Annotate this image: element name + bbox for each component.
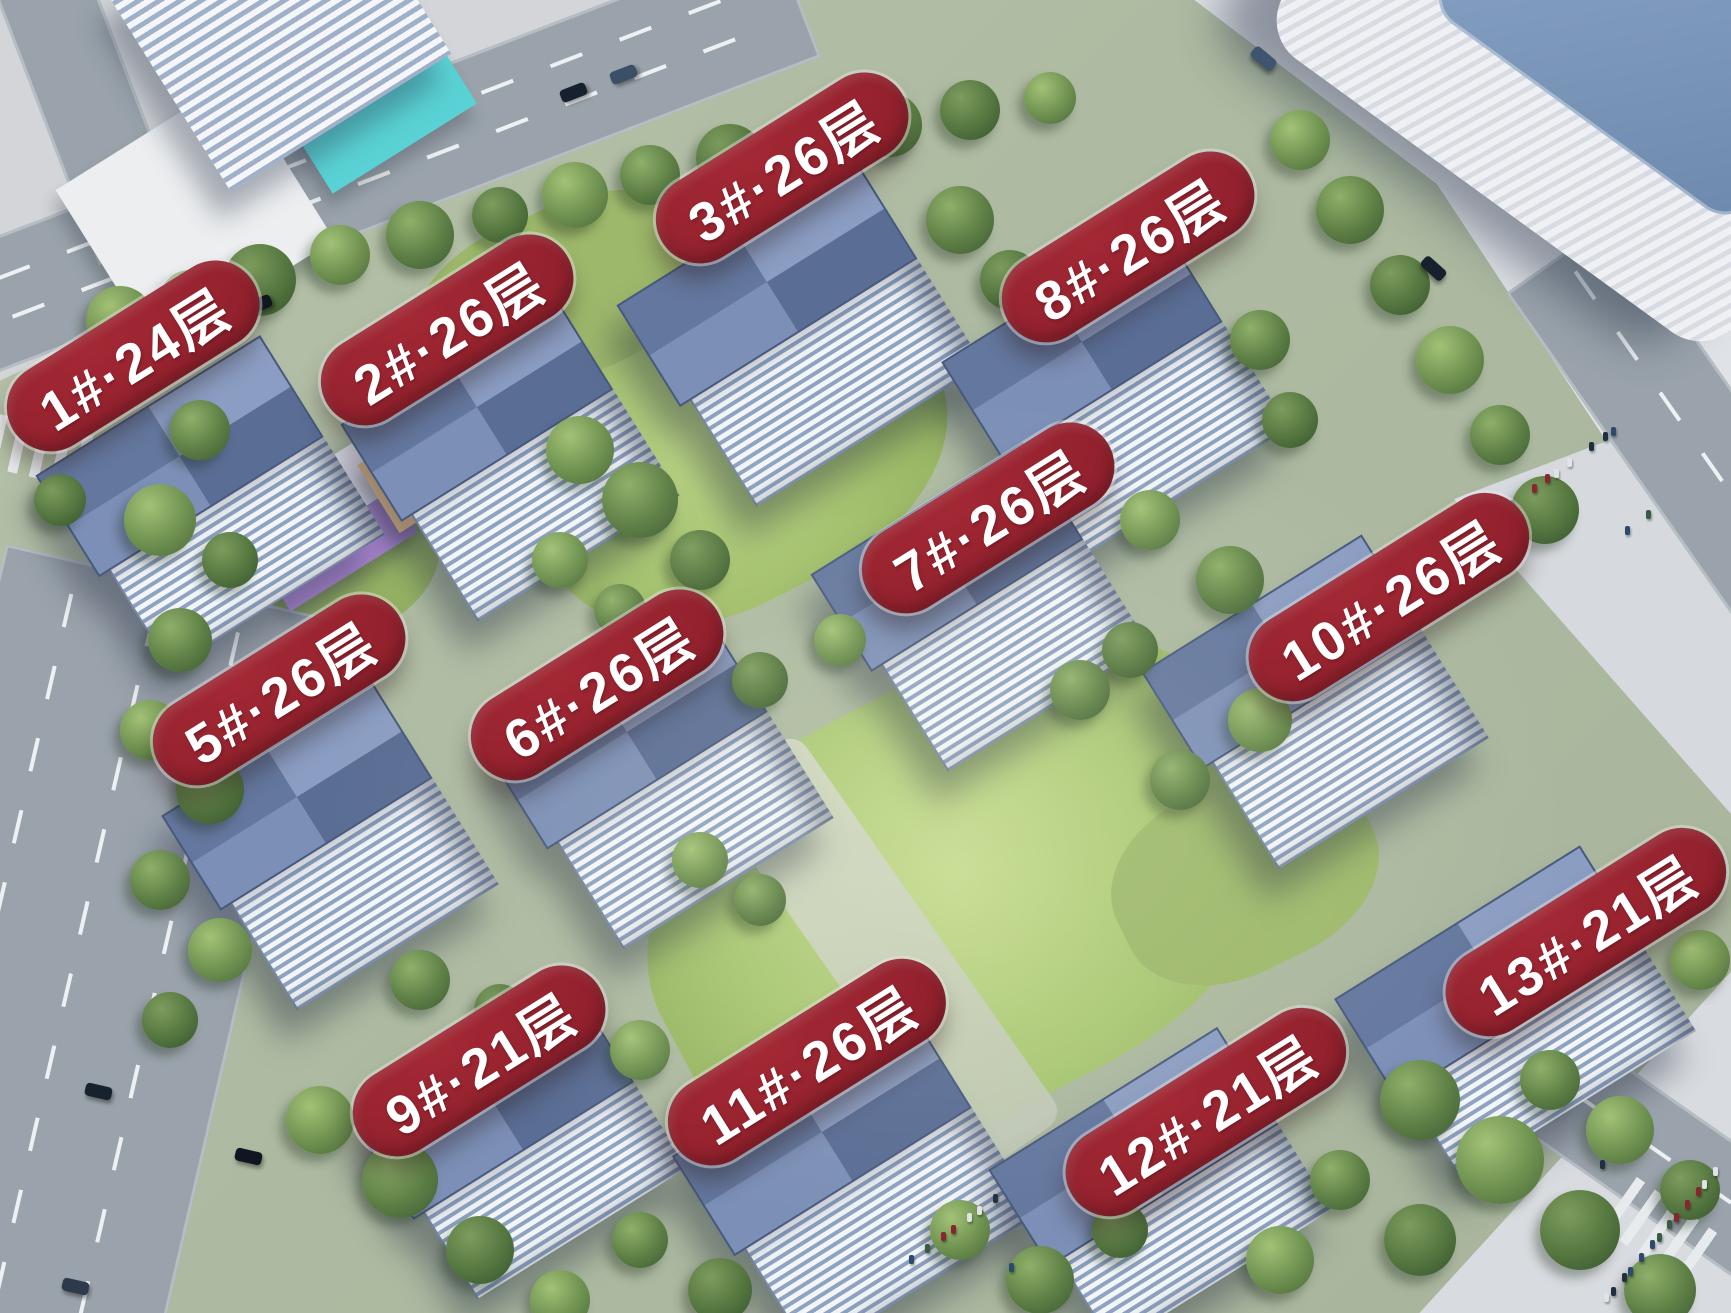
site-plan-rendering: 1#·24层2#·26层3#·26层8#·26层7#·26层10#·26层5#·… bbox=[0, 0, 1731, 1313]
building-label-7: 7#·26层 bbox=[845, 406, 1131, 630]
building-label-6: 6#·26层 bbox=[454, 573, 740, 797]
building-label-2: 2#·26层 bbox=[304, 218, 590, 442]
building-label-11: 11#·26层 bbox=[651, 942, 962, 1182]
building-labels-layer: 1#·24层2#·26层3#·26层8#·26层7#·26层10#·26层5#·… bbox=[0, 0, 1731, 1313]
building-label-10: 10#·26层 bbox=[1232, 476, 1546, 718]
building-label-13: 13#·21层 bbox=[1429, 811, 1731, 1053]
building-label-12: 12#·21层 bbox=[1049, 991, 1363, 1233]
building-label-9: 9#·21层 bbox=[336, 949, 622, 1173]
building-label-8: 8#·26层 bbox=[985, 135, 1271, 359]
building-label-3: 3#·26层 bbox=[639, 56, 925, 280]
building-label-5: 5#·26层 bbox=[136, 578, 422, 802]
building-label-1: 1#·24层 bbox=[0, 244, 276, 468]
